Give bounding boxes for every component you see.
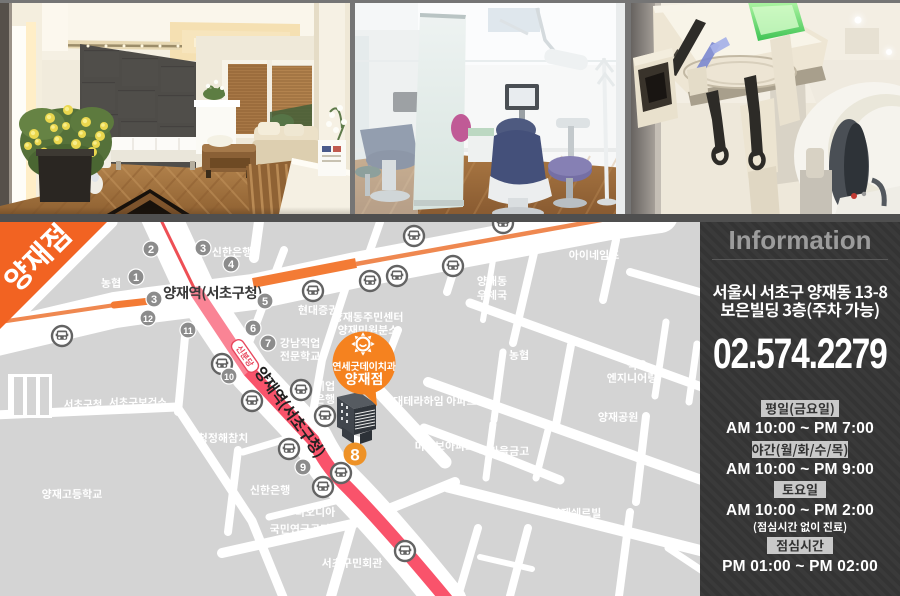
- svg-text:12: 12: [143, 314, 153, 324]
- svg-text:5: 5: [262, 296, 268, 308]
- svg-text:11: 11: [183, 326, 193, 336]
- svg-text:3: 3: [200, 243, 206, 255]
- svg-text:10: 10: [224, 372, 234, 382]
- svg-text:2: 2: [148, 244, 154, 256]
- svg-text:3: 3: [151, 294, 157, 306]
- svg-text:6: 6: [250, 323, 256, 335]
- svg-text:1: 1: [133, 272, 139, 284]
- svg-text:8: 8: [350, 446, 359, 465]
- svg-text:7: 7: [265, 338, 271, 350]
- svg-text:9: 9: [300, 462, 306, 474]
- svg-text:4: 4: [228, 259, 235, 271]
